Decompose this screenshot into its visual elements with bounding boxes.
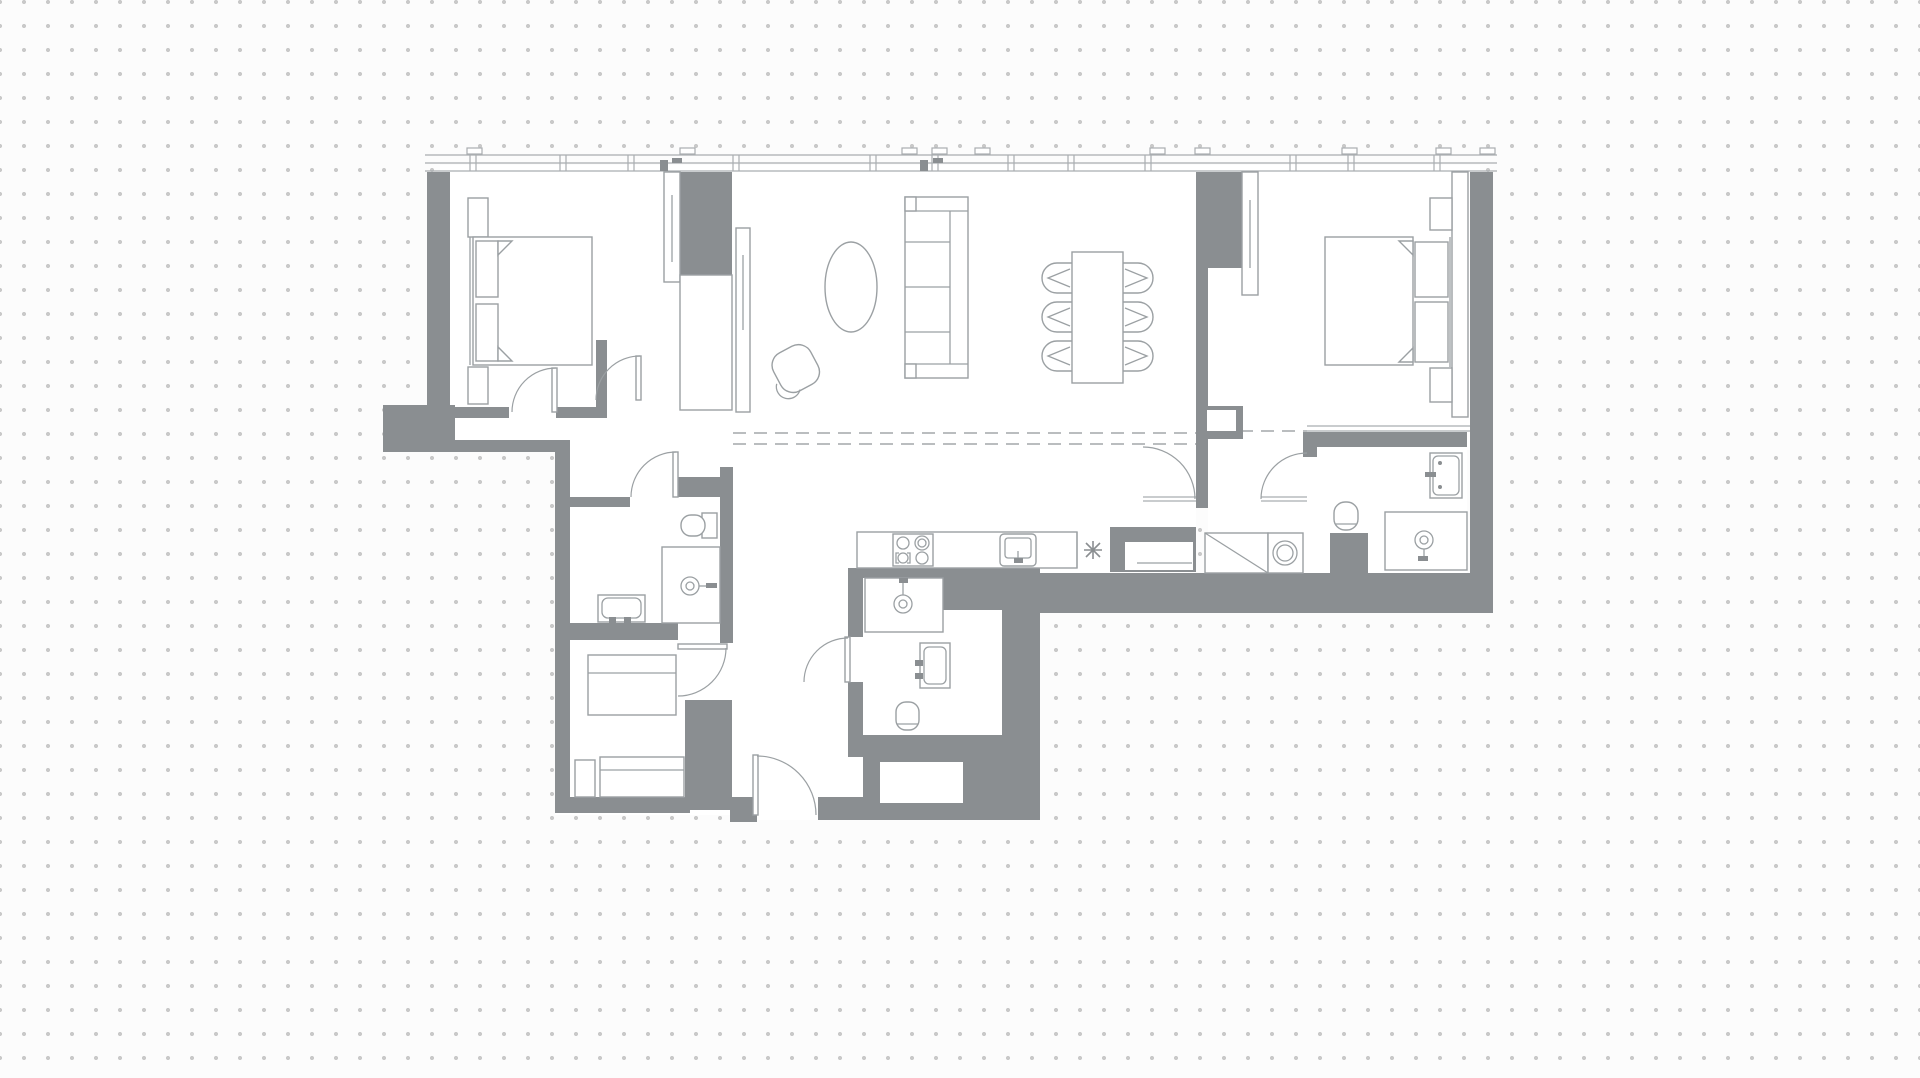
door-leaf: [753, 755, 758, 815]
wall-segment: [848, 568, 863, 637]
wall-segment: [1470, 172, 1493, 613]
pillow-icon: [1415, 242, 1448, 297]
oval-coffee-table-icon: [825, 242, 877, 332]
floor-plan: [0, 0, 1920, 1078]
wall-segment: [1002, 568, 1040, 820]
wall-segment: [818, 797, 863, 820]
kitchen-counter-icon: [857, 532, 1077, 568]
wall-segment: [680, 172, 732, 275]
wall-segment: [555, 623, 678, 640]
dining-chair-icon: [1123, 302, 1153, 332]
duct-icon: [880, 762, 963, 803]
wall-segment: [1040, 573, 1493, 613]
wall-segment: [1196, 172, 1230, 268]
toilet-icon: [896, 702, 919, 730]
refrigerator-niche-icon: [1125, 542, 1193, 570]
nightstand-icon: [1430, 198, 1452, 230]
washing-machine-icon: [1268, 533, 1303, 573]
nightstand-icon: [468, 367, 488, 404]
sofa-icon: [905, 197, 968, 378]
washbasin-icon: [915, 643, 950, 688]
kitchen-furniture: [857, 532, 1102, 568]
door-leaf: [673, 452, 678, 497]
dining-chair-icon: [1042, 341, 1072, 371]
kitchen-sink-icon: [1000, 534, 1036, 566]
hallway-furniture: [1205, 533, 1303, 573]
toilet-icon: [681, 513, 717, 538]
wardrobe-icon: [680, 275, 732, 410]
wardrobe-icon: [1452, 172, 1468, 417]
shower-tray-icon: [1385, 512, 1467, 570]
dining-chair-icon: [1123, 341, 1153, 371]
wardrobe-shelves-icon: [588, 655, 676, 715]
wall-segment: [1317, 432, 1467, 447]
wall-segment: [848, 568, 1002, 578]
duct-inner: [1207, 410, 1236, 431]
shower-tray-icon: [865, 578, 943, 632]
washbasin-icon: [598, 595, 645, 623]
wall-segment: [720, 467, 733, 643]
wall-segment: [1230, 172, 1242, 268]
wall-segment: [848, 735, 1002, 757]
wall-segment: [943, 578, 1002, 610]
cooktop-icon: [893, 534, 933, 566]
wardrobe-shelves-icon: [600, 757, 684, 797]
wall-segment: [560, 497, 630, 507]
door-leaf: [636, 356, 641, 400]
pillow-icon: [1415, 302, 1448, 362]
dining-chair-icon: [1042, 302, 1072, 332]
wall-segment: [383, 405, 455, 452]
washbasin-icon: [1425, 453, 1462, 498]
shower-tray-icon: [662, 547, 720, 623]
wall-segment: [848, 682, 863, 735]
dining-chair-icon: [1123, 263, 1153, 293]
door-leaf: [845, 637, 850, 682]
freezer-mark-icon: [1084, 541, 1102, 559]
double-bed-icon: [1325, 237, 1413, 365]
wall-segment: [685, 700, 732, 810]
pillow-icon: [476, 304, 498, 361]
wall-segment: [1196, 268, 1208, 508]
floor-plan-canvas: [0, 0, 1920, 1078]
nightstand-icon: [1430, 368, 1452, 402]
wall-segment: [1330, 533, 1368, 573]
nightstand-icon: [468, 198, 488, 237]
dining-chair-icon: [1042, 263, 1072, 293]
pillow-icon: [476, 241, 498, 297]
door-leaf: [552, 368, 557, 412]
cabinet-icon: [575, 760, 595, 797]
wall-segment: [455, 407, 509, 418]
wall-segment: [556, 407, 603, 418]
dining-table-icon: [1072, 252, 1123, 383]
wall-segment: [427, 172, 450, 405]
toilet-icon: [1334, 502, 1358, 530]
wall-segment: [555, 797, 690, 813]
door-leaf: [678, 644, 727, 649]
wall-segment: [455, 440, 570, 452]
wall-segment: [676, 477, 723, 497]
dining-set: [1042, 252, 1153, 383]
